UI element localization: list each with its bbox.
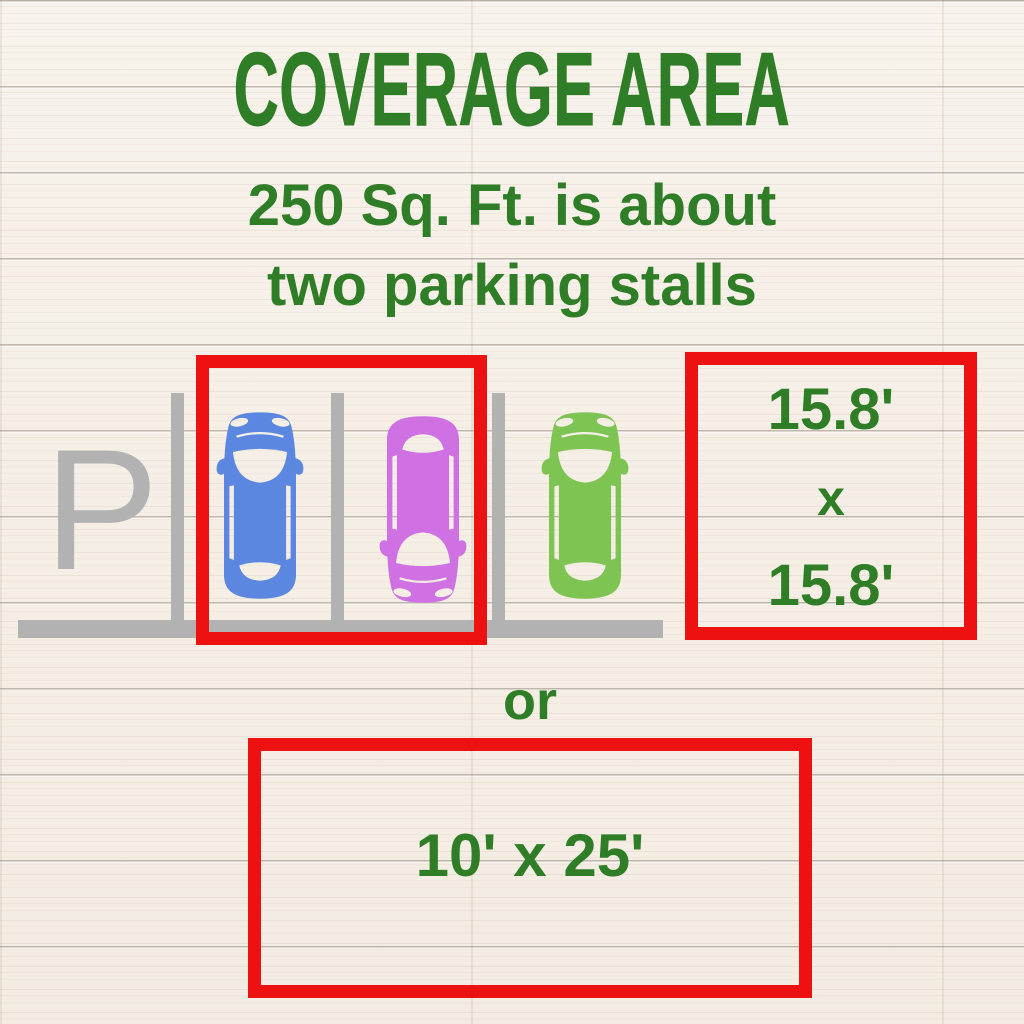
- or-label: or: [248, 670, 812, 732]
- green-car-top-view-icon: [536, 407, 634, 605]
- subtitle: 250 Sq. Ft. is about two parking stalls: [0, 166, 1024, 326]
- rectangle-dimension-box: 10' x 25': [248, 738, 812, 998]
- square-height-label: 15.8': [768, 557, 895, 615]
- parking-sign-letter: P: [44, 424, 159, 596]
- square-dimension-box: 15.8' x 15.8': [685, 352, 977, 640]
- dimension-separator: x: [817, 473, 845, 523]
- square-width-label: 15.8': [768, 381, 895, 439]
- stall-divider-line: [171, 393, 184, 638]
- two-stalls-highlight-box: [196, 355, 487, 645]
- page-title-text: COVERAGE AREA: [234, 38, 791, 142]
- stall-divider-line: [492, 393, 505, 638]
- rectangle-dimension-label: 10' x 25': [416, 821, 645, 890]
- coverage-area-infographic: COVERAGE AREA 250 Sq. Ft. is about two p…: [0, 0, 1024, 1024]
- subtitle-line-1: 250 Sq. Ft. is about: [0, 166, 1024, 246]
- subtitle-line-2: two parking stalls: [0, 246, 1024, 326]
- page-title: COVERAGE AREA: [0, 38, 1024, 142]
